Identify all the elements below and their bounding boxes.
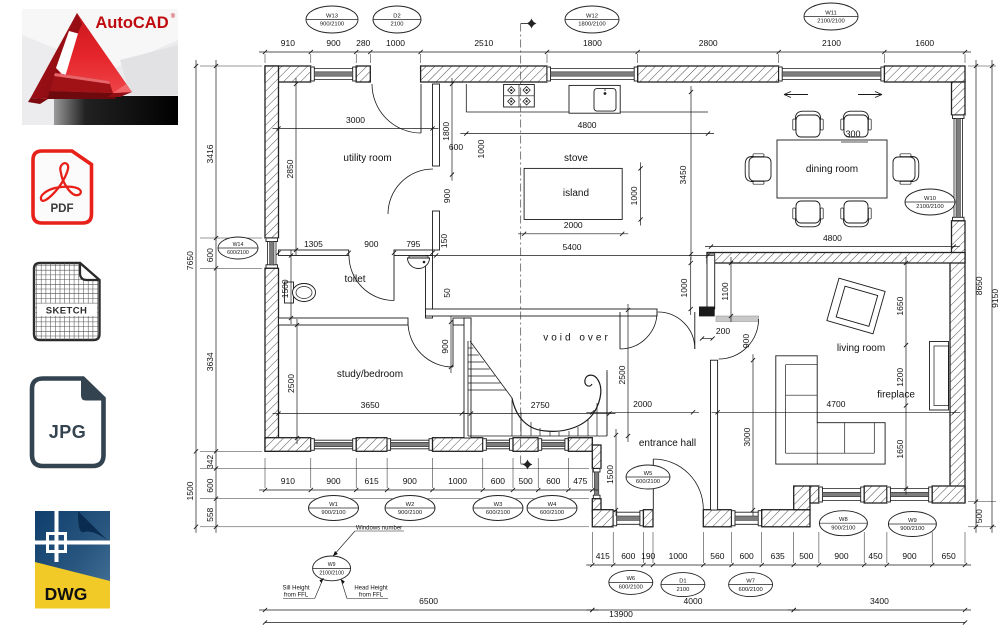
- svg-text:W5: W5: [644, 471, 653, 477]
- svg-text:560: 560: [710, 551, 724, 561]
- svg-text:2500: 2500: [286, 374, 296, 393]
- svg-text:600/2100: 600/2100: [636, 479, 660, 485]
- svg-text:500: 500: [799, 551, 813, 561]
- svg-text:4700: 4700: [827, 399, 846, 409]
- svg-text:W11: W11: [825, 10, 837, 16]
- svg-text:615: 615: [365, 476, 379, 486]
- svg-text:2850: 2850: [285, 159, 295, 178]
- svg-text:2510: 2510: [474, 38, 493, 48]
- svg-text:1000: 1000: [386, 38, 405, 48]
- svg-text:island: island: [563, 188, 589, 199]
- svg-text:W10: W10: [924, 196, 936, 202]
- svg-text:fireplace: fireplace: [877, 390, 915, 401]
- svg-text:1500: 1500: [185, 481, 195, 500]
- svg-text:600/2100: 600/2100: [227, 250, 249, 256]
- svg-text:2100/2100: 2100/2100: [319, 571, 344, 577]
- svg-text:Windows number: Windows number: [356, 526, 402, 532]
- svg-text:635: 635: [771, 551, 785, 561]
- svg-text:2000: 2000: [564, 220, 583, 230]
- svg-text:3000: 3000: [346, 115, 365, 125]
- svg-text:900: 900: [326, 38, 340, 48]
- svg-text:2100: 2100: [676, 587, 689, 593]
- svg-text:dining room: dining room: [806, 164, 858, 175]
- svg-text:900: 900: [442, 189, 452, 203]
- svg-text:3400: 3400: [870, 596, 889, 606]
- svg-text:900/2100: 900/2100: [831, 525, 855, 531]
- svg-text:W7: W7: [746, 578, 755, 584]
- svg-text:SKETCH: SKETCH: [46, 306, 87, 317]
- svg-text:300: 300: [845, 129, 860, 139]
- svg-text:1000: 1000: [476, 139, 486, 158]
- svg-text:900: 900: [741, 334, 751, 348]
- svg-text:600/2100: 600/2100: [540, 510, 564, 516]
- svg-text:utility room: utility room: [343, 153, 391, 164]
- svg-text:900/2100: 900/2100: [900, 526, 924, 532]
- svg-text:3000: 3000: [742, 427, 752, 446]
- svg-text:900/2100: 900/2100: [398, 510, 422, 516]
- svg-text:8650: 8650: [974, 276, 984, 295]
- svg-text:900: 900: [902, 551, 916, 561]
- svg-text:4000: 4000: [684, 596, 703, 606]
- svg-text:415: 415: [596, 551, 610, 561]
- svg-text:900: 900: [440, 339, 450, 353]
- svg-text:600: 600: [205, 478, 215, 492]
- svg-text:1500: 1500: [280, 279, 290, 298]
- svg-text:W12: W12: [586, 13, 598, 19]
- svg-text:450: 450: [868, 551, 882, 561]
- svg-text:2800: 2800: [699, 38, 718, 48]
- svg-text:1100: 1100: [720, 282, 730, 301]
- svg-text:4800: 4800: [823, 233, 842, 243]
- svg-text:3450: 3450: [678, 165, 688, 184]
- svg-text:Head Height: Head Height: [354, 586, 388, 592]
- svg-text:entrance hall: entrance hall: [639, 438, 696, 449]
- svg-text:900/2100: 900/2100: [320, 22, 344, 28]
- svg-text:W2: W2: [406, 502, 415, 508]
- svg-text:1800: 1800: [583, 38, 602, 48]
- svg-text:D1: D1: [679, 578, 686, 584]
- svg-text:1800/2100: 1800/2100: [578, 22, 605, 28]
- svg-text:®: ®: [171, 13, 176, 20]
- svg-text:475: 475: [573, 476, 587, 486]
- svg-text:600: 600: [205, 248, 215, 262]
- svg-text:3416: 3416: [205, 144, 215, 163]
- svg-text:2100/2100: 2100/2100: [817, 19, 844, 25]
- svg-text:DWG: DWG: [45, 584, 88, 604]
- svg-text:W8: W8: [839, 517, 848, 523]
- svg-text:1000: 1000: [448, 476, 467, 486]
- svg-text:900: 900: [364, 239, 378, 249]
- svg-text:600: 600: [491, 476, 505, 486]
- svg-text:2500: 2500: [617, 365, 627, 384]
- svg-text:600: 600: [449, 142, 463, 152]
- svg-text:Sill Height: Sill Height: [282, 586, 309, 592]
- svg-text:600: 600: [621, 551, 635, 561]
- svg-text:W9: W9: [328, 562, 336, 568]
- svg-text:AutoCAD: AutoCAD: [95, 14, 168, 32]
- svg-text:280: 280: [356, 38, 370, 48]
- svg-text:910: 910: [281, 38, 295, 48]
- svg-text:13900: 13900: [609, 609, 633, 619]
- svg-text:7650: 7650: [185, 251, 195, 270]
- svg-text:910: 910: [281, 476, 295, 486]
- svg-text:W13: W13: [326, 13, 338, 19]
- svg-text:3634: 3634: [205, 352, 215, 371]
- svg-text:650: 650: [942, 551, 956, 561]
- svg-text:W1: W1: [329, 502, 338, 508]
- svg-text:900/2100: 900/2100: [321, 510, 345, 516]
- svg-text:W14: W14: [233, 242, 244, 248]
- svg-text:200: 200: [716, 326, 730, 336]
- svg-text:3650: 3650: [361, 400, 380, 410]
- svg-text:600/2100: 600/2100: [739, 587, 763, 593]
- svg-text:PDF: PDF: [51, 203, 74, 215]
- svg-text:795: 795: [406, 239, 420, 249]
- svg-text:500: 500: [974, 509, 984, 523]
- svg-text:from FFL: from FFL: [284, 593, 309, 599]
- svg-text:9150: 9150: [990, 289, 1000, 308]
- svg-text:150: 150: [439, 234, 449, 248]
- svg-text:900: 900: [326, 476, 340, 486]
- svg-text:from FFL: from FFL: [359, 593, 384, 599]
- svg-text:1500: 1500: [605, 465, 615, 484]
- svg-text:W6: W6: [626, 576, 635, 582]
- svg-text:600: 600: [740, 551, 754, 561]
- svg-text:JPG: JPG: [49, 422, 87, 442]
- svg-text:342: 342: [205, 455, 215, 469]
- svg-text:600/2100: 600/2100: [619, 585, 643, 591]
- svg-text:4800: 4800: [578, 120, 597, 130]
- svg-text:1650: 1650: [895, 296, 905, 315]
- svg-text:1000: 1000: [669, 551, 688, 561]
- svg-text:1000: 1000: [629, 186, 639, 205]
- svg-text:600: 600: [546, 476, 560, 486]
- svg-text:2100/2100: 2100/2100: [916, 204, 943, 210]
- svg-text:900: 900: [403, 476, 417, 486]
- svg-text:2100: 2100: [391, 22, 404, 28]
- svg-text:2000: 2000: [633, 399, 652, 409]
- svg-text:6500: 6500: [419, 596, 438, 606]
- svg-text:600/2100: 600/2100: [486, 510, 510, 516]
- svg-text:558: 558: [205, 507, 215, 521]
- svg-text:1200: 1200: [895, 368, 905, 387]
- svg-text:190: 190: [641, 551, 655, 561]
- svg-text:1600: 1600: [915, 38, 934, 48]
- svg-text:1305: 1305: [304, 239, 323, 249]
- svg-text:W4: W4: [548, 502, 557, 508]
- svg-text:study/bedroom: study/bedroom: [337, 369, 403, 380]
- svg-text:toilet: toilet: [344, 274, 365, 285]
- svg-text:900: 900: [834, 551, 848, 561]
- svg-text:1000: 1000: [679, 278, 689, 297]
- svg-text:stove: stove: [564, 153, 588, 164]
- svg-text:5400: 5400: [563, 242, 582, 252]
- svg-text:D2: D2: [393, 13, 400, 19]
- svg-text:50: 50: [442, 288, 452, 298]
- svg-text:W3: W3: [494, 502, 503, 508]
- svg-text:void over: void over: [543, 333, 611, 344]
- svg-text:1800: 1800: [441, 122, 451, 141]
- svg-text:2100: 2100: [822, 38, 841, 48]
- svg-text:living room: living room: [837, 343, 885, 354]
- svg-text:W9: W9: [908, 518, 917, 524]
- svg-text:500: 500: [519, 476, 533, 486]
- svg-text:1650: 1650: [895, 439, 905, 458]
- svg-text:2750: 2750: [531, 400, 550, 410]
